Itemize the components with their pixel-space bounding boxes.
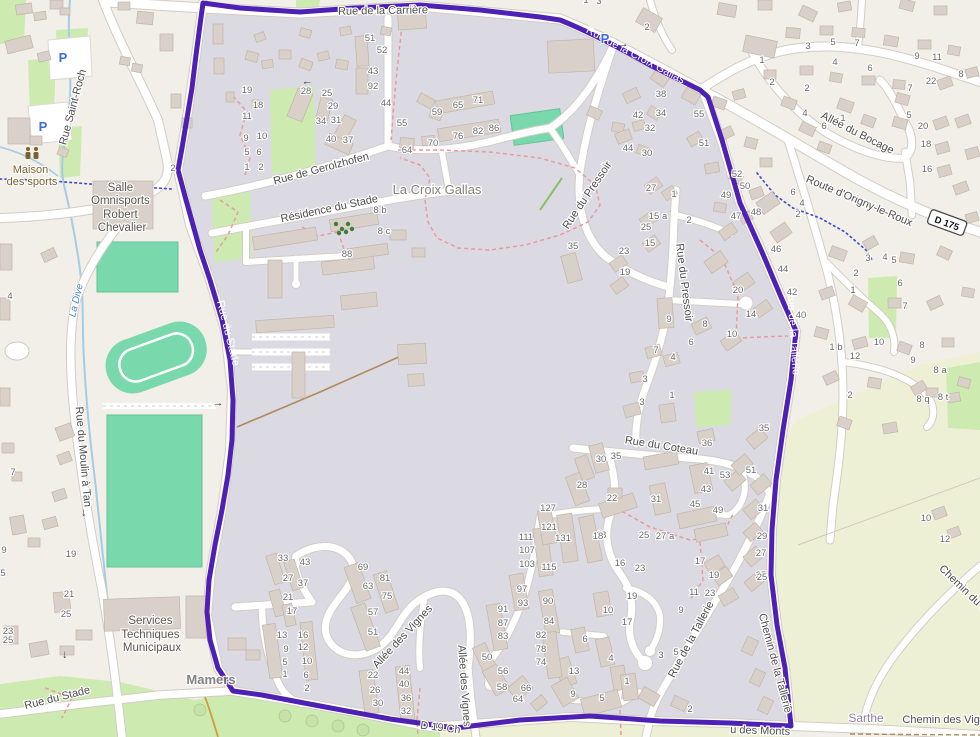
house-number: 57: [368, 607, 379, 618]
house-number: 35: [611, 451, 622, 462]
house-number: 5: [244, 147, 249, 158]
house-number: 51: [699, 138, 710, 149]
house-number: 131: [555, 533, 571, 544]
building: [380, 26, 391, 36]
house-number: 78: [536, 644, 547, 655]
house-number: 83: [498, 631, 509, 642]
building: [214, 58, 224, 74]
house-number: 1: [583, 0, 588, 6]
house-number: 9: [910, 355, 915, 366]
house-number: 22: [926, 76, 937, 87]
admin-label-sarthe: Sarthe: [848, 711, 884, 725]
house-number: 5: [673, 647, 678, 658]
building: [659, 403, 676, 423]
house-number: 121: [541, 522, 557, 533]
building: [397, 343, 426, 364]
locality-la-croix-gallas: La Croix Gallas: [393, 182, 482, 197]
building: [10, 515, 27, 535]
poi-maison-des-sports: Maison des sports: [7, 164, 58, 188]
house-number: 23: [635, 563, 646, 574]
house-number: 23: [705, 588, 716, 599]
house-number: 9: [666, 314, 671, 325]
house-number: 33: [278, 553, 289, 564]
street-label: Chemin des Vignes: [902, 714, 980, 726]
house-number: 1: [282, 669, 287, 680]
house-number: 9: [570, 689, 575, 700]
building: [171, 94, 181, 108]
house-number: 51: [365, 33, 376, 44]
house-number: 84: [544, 616, 555, 627]
house-number: 97: [517, 584, 528, 595]
city-label-mamers: Mamers: [186, 672, 235, 687]
house-number: 21: [283, 592, 294, 603]
house-number: 32: [401, 706, 412, 717]
building: [412, 248, 425, 257]
house-number: 7: [854, 38, 859, 49]
house-number: 92: [368, 81, 379, 92]
house-number: 12: [850, 351, 861, 362]
tree-icon: [357, 724, 369, 736]
house-number: 10: [921, 513, 932, 524]
house-number: 25: [61, 609, 72, 620]
house-number: 3: [658, 650, 663, 661]
building: [786, 27, 801, 38]
house-number: 127: [540, 503, 556, 514]
house-number: 13: [569, 666, 580, 677]
house-number: 71: [473, 95, 484, 106]
building: [820, 26, 833, 35]
building: [882, 422, 898, 434]
house-number: 30: [373, 698, 384, 709]
house-number: 12: [940, 534, 951, 545]
house-number: 47: [731, 211, 742, 222]
house-number: 9: [678, 605, 683, 616]
house-number: 44: [778, 264, 789, 275]
house-number: 3: [639, 397, 644, 408]
house-number: 36: [702, 438, 713, 449]
house-number: 52: [732, 169, 743, 180]
map-canvas[interactable]: Maison des sports Salle Omnisports Rober…: [0, 0, 980, 737]
house-number: 25: [639, 530, 650, 541]
house-number: 8 q: [916, 394, 929, 405]
house-number: 115: [541, 562, 556, 573]
house-number: 9: [1, 545, 6, 556]
house-number: 2: [258, 162, 263, 173]
street-label: u des Monts: [730, 724, 791, 737]
building: [339, 26, 351, 36]
oneway-arrow-icon: →: [79, 508, 91, 519]
building: [829, 72, 842, 83]
house-number: 50: [482, 652, 493, 663]
house-number: 16: [922, 164, 933, 175]
house-number: 31: [651, 494, 662, 505]
house-number: 63: [363, 581, 374, 592]
house-number: 55: [694, 109, 705, 120]
house-number: 2: [853, 268, 858, 279]
oneway-arrow-icon: →: [618, 38, 629, 50]
house-number: 44: [399, 666, 410, 677]
house-number: 74: [536, 657, 547, 668]
house-number: 42: [633, 110, 644, 121]
house-number: 29: [757, 531, 768, 542]
map-svg[interactable]: Maison des sports Salle Omnisports Rober…: [0, 0, 980, 737]
house-number: 8 a: [933, 365, 947, 376]
house-number: 5: [830, 37, 835, 48]
building: [226, 92, 234, 102]
tree-icon: [332, 720, 344, 732]
house-number: 5: [906, 110, 911, 121]
house-number: 11: [242, 111, 252, 122]
house-number: 3: [865, 253, 870, 264]
house-number: 36: [401, 693, 412, 704]
house-number: 25: [3, 635, 14, 646]
house-number: 58: [497, 682, 508, 693]
house-number: 5: [599, 693, 604, 704]
house-number: 6: [867, 63, 872, 74]
building: [268, 260, 282, 298]
house-number: 2: [804, 83, 809, 94]
house-number: 28: [577, 480, 588, 491]
house-number: 31: [758, 503, 769, 514]
house-number: 82: [473, 126, 484, 137]
oneway-arrow-icon: →: [60, 650, 72, 661]
house-number: 13: [277, 630, 288, 641]
house-number: 20: [733, 285, 744, 296]
tree-icon: [334, 222, 338, 226]
house-number: 40: [796, 310, 807, 321]
building: [0, 244, 12, 270]
house-number: 1: [669, 390, 674, 401]
house-number: 3: [596, 0, 601, 7]
building: [356, 68, 368, 94]
house-number: 40: [326, 134, 337, 145]
house-number: 15: [645, 238, 656, 249]
house-number: 27: [756, 548, 767, 559]
house-number: 7: [902, 301, 907, 312]
house-number: 6: [688, 337, 693, 348]
house-number: 31: [331, 115, 342, 126]
house-number: 17: [287, 606, 298, 617]
oneway-arrow-icon: →: [213, 397, 224, 409]
parking-icon: P: [39, 119, 48, 134]
house-number: 2: [686, 215, 691, 226]
house-number: 18: [253, 100, 264, 111]
house-number: 3: [642, 374, 647, 385]
house-number: 11: [932, 52, 942, 63]
building: [758, 0, 772, 10]
house-number: 14: [746, 309, 757, 320]
house-number: 32: [645, 123, 656, 134]
house-number: 2: [795, 209, 800, 220]
house-number: 30: [642, 148, 653, 159]
building: [408, 374, 425, 387]
building: [837, 1, 851, 12]
pond: [5, 342, 29, 360]
parking-icon: P: [59, 50, 68, 65]
house-number: 19: [709, 570, 720, 581]
building: [8, 118, 30, 144]
building: [942, 338, 954, 347]
building: [947, 45, 960, 56]
house-number: 49: [713, 505, 724, 516]
house-number: 34: [316, 116, 327, 127]
house-number: 16: [298, 630, 309, 641]
house-number: 8: [702, 319, 707, 330]
house-number: 7: [907, 83, 912, 94]
house-number: 27 a: [656, 531, 675, 542]
building: [160, 34, 173, 51]
building: [34, 11, 47, 21]
tree-icon: [306, 715, 318, 727]
house-number: 9: [243, 133, 248, 144]
house-number: 41: [704, 466, 715, 477]
building: [893, 79, 906, 89]
house-number: 1: [244, 162, 249, 173]
house-number: 87: [498, 618, 509, 629]
house-number: 20: [918, 121, 929, 132]
house-number: 107: [519, 545, 535, 556]
building: [228, 638, 246, 650]
house-number: 27: [283, 573, 294, 584]
house-number: 111: [519, 532, 533, 543]
building: [918, 40, 931, 49]
building: [947, 392, 960, 403]
house-number: 64: [513, 694, 524, 705]
building: [852, 27, 866, 37]
house-number: 22: [607, 493, 618, 504]
house-number: 11: [689, 587, 699, 598]
house-number: 2: [170, 163, 175, 174]
house-number: 75: [382, 591, 393, 602]
house-number: 25: [322, 88, 333, 99]
house-number: 35: [759, 423, 770, 434]
building: [704, 162, 720, 174]
house-number: 1: [671, 189, 676, 200]
tree-icon: [346, 222, 350, 226]
building: [30, 136, 42, 145]
house-number: 8: [958, 69, 963, 80]
tree-icon: [350, 227, 354, 231]
house-number: 30: [596, 454, 607, 465]
house-number: 40: [399, 679, 410, 690]
house-number: 59: [432, 107, 443, 118]
house-number: 6: [897, 278, 902, 289]
house-number: 6: [256, 147, 261, 158]
house-number: 90: [543, 596, 554, 607]
house-number: 45: [690, 499, 701, 510]
house-number: 82: [536, 630, 547, 641]
building: [15, 3, 32, 15]
building: [862, 76, 875, 85]
house-number: 5: [891, 255, 896, 266]
house-number: 19: [242, 85, 253, 96]
house-number: 1 b: [829, 342, 842, 353]
building: [335, 59, 348, 70]
house-number: 70: [428, 138, 439, 149]
house-number: 9: [283, 644, 288, 655]
house-number: 8 t: [938, 392, 949, 403]
street-label: Rue de la Carrière: [338, 4, 428, 18]
house-number: 12: [298, 642, 309, 653]
house-number: 2: [769, 77, 774, 88]
house-number: 5: [0, 568, 5, 579]
house-number: 55: [397, 118, 408, 129]
building: [119, 56, 130, 66]
house-number: 44: [381, 98, 392, 109]
house-number: 17: [695, 556, 706, 567]
building: [261, 59, 273, 69]
house-number: 44: [623, 143, 634, 154]
house-number: 21: [64, 589, 75, 600]
house-number: 1: [624, 676, 629, 687]
house-number: 4: [799, 198, 804, 209]
house-number: 5: [282, 657, 287, 668]
house-number: 9: [914, 51, 919, 62]
house-number: 4: [802, 108, 807, 119]
house-number: 29: [328, 101, 339, 112]
house-number: 26: [370, 685, 381, 696]
building: [883, 35, 899, 47]
house-number: 17: [622, 617, 633, 628]
building: [800, 66, 813, 75]
building: [186, 596, 206, 638]
house-number: 18: [921, 139, 932, 150]
house-number: 88: [342, 249, 353, 260]
house-number: 2: [644, 22, 649, 33]
building: [118, 2, 130, 10]
building: [60, 8, 70, 15]
house-number: 103: [519, 559, 535, 570]
house-number: 64: [402, 145, 413, 156]
tree-icon: [337, 231, 341, 235]
house-number: 6: [582, 634, 587, 645]
poi-services-techniques: Services Techniques Municipaux: [121, 615, 182, 654]
house-number: 19: [620, 267, 631, 278]
building: [2, 443, 14, 453]
building: [246, 650, 260, 660]
house-number: 27: [646, 183, 657, 194]
building: [136, 11, 153, 25]
house-number: 1: [759, 55, 764, 66]
house-number: 16: [615, 558, 626, 569]
building: [961, 287, 974, 298]
house-number: 8: [919, 340, 924, 351]
house-number: 46: [771, 244, 782, 255]
house-number: 69: [358, 562, 369, 573]
house-number: 65: [453, 100, 464, 111]
building: [760, 158, 772, 167]
house-number: 3: [805, 41, 810, 52]
house-number: 38: [656, 89, 667, 100]
building: [28, 538, 40, 547]
house-number: 35: [568, 241, 579, 252]
parking-icon: P: [601, 31, 610, 46]
house-number: 7: [653, 345, 658, 356]
tree-icon: [340, 227, 344, 231]
house-number: 6: [790, 187, 795, 198]
house-number: 43: [300, 557, 311, 568]
house-number: 53: [720, 470, 731, 481]
building: [713, 202, 726, 213]
building: [390, 230, 406, 240]
building: [279, 50, 291, 59]
building: [213, 24, 223, 44]
house-number: 4: [832, 57, 837, 68]
house-number: 50: [740, 181, 751, 192]
pitch: [97, 242, 178, 292]
house-number: 23: [619, 246, 630, 257]
building: [29, 641, 49, 658]
house-number: 4: [670, 352, 675, 363]
building: [888, 298, 901, 308]
house-number: 37: [343, 135, 354, 146]
house-number: 48: [751, 207, 762, 218]
house-number: 51: [746, 465, 757, 476]
house-number: 6: [821, 121, 826, 132]
tree-icon: [194, 704, 206, 716]
building: [131, 63, 142, 73]
house-number: 91: [498, 604, 509, 615]
house-number: 22: [368, 670, 379, 681]
oneway-arrow-icon: →: [302, 78, 313, 90]
house-number: 25: [641, 222, 652, 233]
building: [934, 6, 947, 15]
house-number: 34: [656, 108, 667, 119]
house-number: 18: [593, 531, 604, 542]
house-number: 49: [721, 190, 732, 201]
house-number: 81: [380, 573, 391, 584]
house-number: 93: [518, 598, 529, 609]
house-number: 10: [302, 656, 313, 667]
house-number: 10: [603, 605, 614, 616]
house-number: 43: [701, 484, 712, 495]
building: [0, 388, 10, 406]
building: [76, 630, 92, 640]
house-number: 4: [608, 653, 613, 664]
house-number: 42: [787, 287, 798, 298]
pitch: [107, 415, 202, 567]
house-number: 19: [627, 591, 638, 602]
building: [899, 252, 915, 264]
house-number: 8 c: [378, 226, 391, 237]
house-number: 4: [7, 291, 12, 302]
tree-icon: [279, 710, 291, 722]
house-number: 4: [882, 252, 887, 263]
house-number: 2: [687, 704, 692, 715]
house-number: 52: [377, 45, 388, 56]
house-number: 10: [257, 131, 268, 142]
house-number: 1: [840, 113, 845, 124]
house-number: 37: [298, 578, 309, 589]
house-number: 10: [874, 337, 885, 348]
house-number: 86: [489, 123, 500, 134]
house-number: 25: [757, 572, 768, 583]
building: [292, 352, 305, 398]
house-number: 2: [847, 390, 852, 401]
house-number: 7: [10, 467, 15, 478]
house-number: 19: [66, 549, 77, 560]
house-number: 1: [850, 285, 855, 296]
house-number: 56: [498, 666, 509, 677]
house-number: 2: [304, 683, 309, 694]
house-number: 43: [368, 66, 379, 77]
house-number: 8 b: [373, 205, 386, 216]
building: [867, 377, 882, 389]
house-number: 10: [727, 329, 738, 340]
house-number: 6: [303, 670, 308, 681]
house-number: 51: [368, 627, 379, 638]
building: [547, 39, 595, 73]
